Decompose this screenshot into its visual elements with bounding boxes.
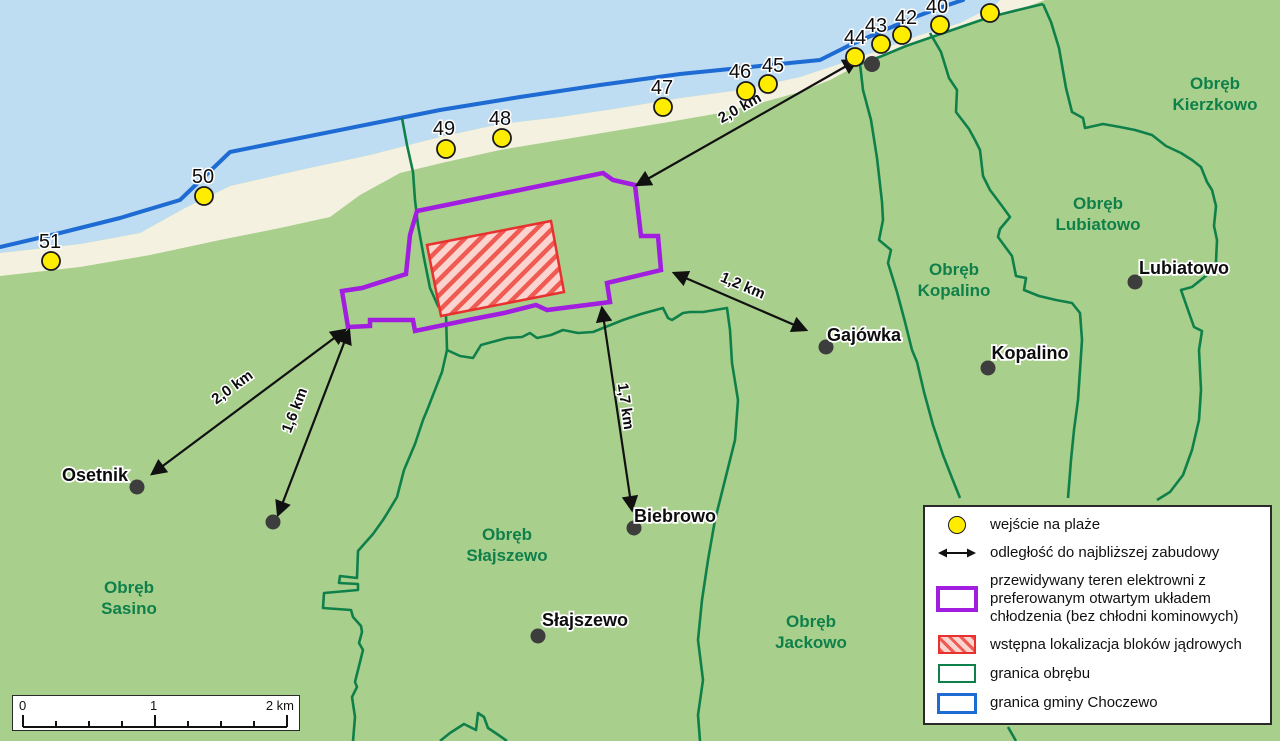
- settlement-dot-osetnik: [130, 480, 145, 495]
- legend-item-reactor-blocks: wstępna lokalizacja bloków jądrowych: [934, 635, 1260, 654]
- legend-label: odległość do najbliższej zabudowy: [990, 544, 1219, 562]
- settlement-label-lubiatowo: Lubiatowo: [1139, 258, 1229, 278]
- beach-entrance-icon: [948, 516, 966, 534]
- beach-entrance-label-44: 44: [844, 27, 866, 49]
- beach-entrance-label-43: 43: [865, 15, 887, 37]
- beach-entrance-marker-44: [846, 48, 864, 66]
- double-arrow-icon: [937, 547, 977, 559]
- beach-entrance-marker-50: [195, 187, 213, 205]
- beach-entrance-marker-45: [759, 75, 777, 93]
- settlement-dot-slajszewo: [531, 629, 546, 644]
- svg-text:Obręb: Obręb: [1190, 74, 1240, 93]
- beach-entrance-marker-40: [931, 16, 949, 34]
- beach-entrance-label-47: 47: [651, 77, 673, 99]
- plant-site-icon: [936, 586, 978, 612]
- legend-item-gmina-boundary: granica gminy Choczewo: [934, 693, 1260, 714]
- svg-text:Obręb: Obręb: [104, 578, 154, 597]
- legend-item-obreb-boundary: granica obrębu: [934, 664, 1260, 683]
- beach-entrance-marker-48: [493, 129, 511, 147]
- svg-text:Obręb: Obręb: [482, 525, 532, 544]
- legend: wejście na plaże odległość do najbliższe…: [923, 505, 1272, 725]
- beach-entrance-marker-49: [437, 140, 455, 158]
- legend-label: granica gminy Choczewo: [990, 694, 1158, 712]
- building-marker: [266, 515, 281, 530]
- svg-text:Słajszewo: Słajszewo: [466, 546, 547, 565]
- svg-text:Obręb: Obręb: [929, 260, 979, 279]
- svg-text:Lubiatowo: Lubiatowo: [1056, 215, 1141, 234]
- legend-item-distance: odległość do najbliższej zabudowy: [934, 544, 1260, 562]
- settlement-label-kopalino: Kopalino: [992, 343, 1069, 363]
- settlement-label-osetnik: Osetnik: [62, 465, 129, 485]
- legend-label: granica obrębu: [990, 665, 1090, 683]
- legend-label: wstępna lokalizacja bloków jądrowych: [990, 636, 1242, 654]
- beach-entrance-marker-46: [737, 82, 755, 100]
- legend-label: wejście na plaże: [990, 516, 1100, 534]
- map-page: 2,0 km 1,2 km 1,7 km 1,6 km 2,0 km Osetn…: [0, 0, 1280, 741]
- legend-item-beach-entrance: wejście na plaże: [934, 516, 1260, 534]
- beach-entrance-label-50: 50: [192, 166, 214, 188]
- beach-entrance-label-42: 42: [895, 7, 917, 29]
- beach-entrance-marker-43: [872, 35, 890, 53]
- svg-text:Kopalino: Kopalino: [918, 281, 991, 300]
- svg-text:Jackowo: Jackowo: [775, 633, 847, 652]
- svg-text:Kierzkowo: Kierzkowo: [1172, 95, 1257, 114]
- beach-entrance-label-46: 46: [729, 61, 751, 83]
- legend-item-plant-site: przewidywany teren elektrowni z preferow…: [934, 572, 1260, 626]
- gmina-boundary-icon: [937, 693, 977, 714]
- scalebar: 0 1 2 km: [12, 695, 300, 731]
- scalebar-ruler: [13, 711, 301, 729]
- svg-text:Obręb: Obręb: [1073, 194, 1123, 213]
- beach-entrance-label-49: 49: [433, 118, 455, 140]
- legend-label: przewidywany teren elektrowni z preferow…: [990, 572, 1238, 626]
- beach-entrance-label-40: 40: [926, 0, 948, 18]
- settlement-label-gajowka: Gajówka: [827, 325, 902, 345]
- settlement-label-biebrowo: Biebrowo: [634, 506, 716, 526]
- svg-text:Obręb: Obręb: [786, 612, 836, 631]
- settlement-label-slajszewo: Słajszewo: [542, 610, 628, 630]
- beach-entrance-label-51: 51: [39, 231, 61, 253]
- beach-entrance-label-45: 45: [762, 55, 784, 77]
- beach-entrance-marker-47: [654, 98, 672, 116]
- svg-text:Sasino: Sasino: [101, 599, 157, 618]
- beach-entrance-label-48: 48: [489, 108, 511, 130]
- building-marker: [864, 56, 880, 72]
- reactor-blocks-icon: [938, 635, 976, 654]
- beach-entrance-marker-51: [42, 252, 60, 270]
- beach-entrance-marker: [981, 4, 999, 22]
- obreb-boundary-icon: [938, 664, 976, 683]
